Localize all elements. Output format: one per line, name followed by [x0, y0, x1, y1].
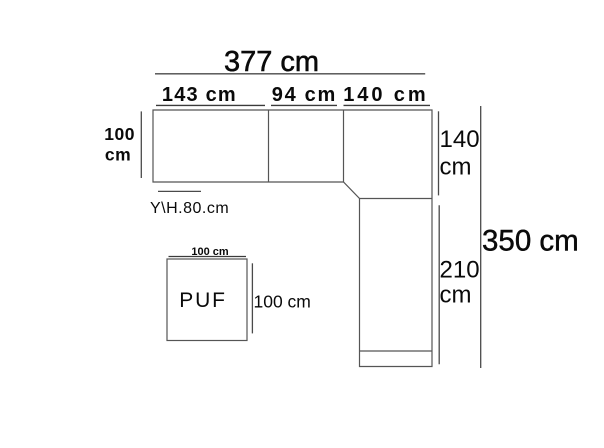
svg-text:140 cm: 140 cm — [343, 84, 428, 106]
svg-text:140: 140 — [440, 126, 480, 153]
svg-text:210: 210 — [440, 257, 480, 284]
svg-text:94 cm: 94 cm — [272, 84, 337, 106]
svg-text:PUF: PUF — [179, 289, 226, 312]
svg-text:cm: cm — [440, 282, 472, 309]
svg-text:143 cm: 143 cm — [162, 84, 237, 106]
svg-text:cm: cm — [105, 144, 131, 164]
svg-text:Y\H.80.cm: Y\H.80.cm — [150, 200, 229, 217]
svg-text:350 cm: 350 cm — [482, 225, 579, 258]
svg-text:cm: cm — [440, 154, 472, 181]
svg-text:377 cm: 377 cm — [224, 46, 319, 78]
svg-text:100: 100 — [104, 124, 135, 144]
svg-text:100 cm: 100 cm — [254, 292, 311, 312]
svg-text:100 cm: 100 cm — [191, 246, 229, 258]
